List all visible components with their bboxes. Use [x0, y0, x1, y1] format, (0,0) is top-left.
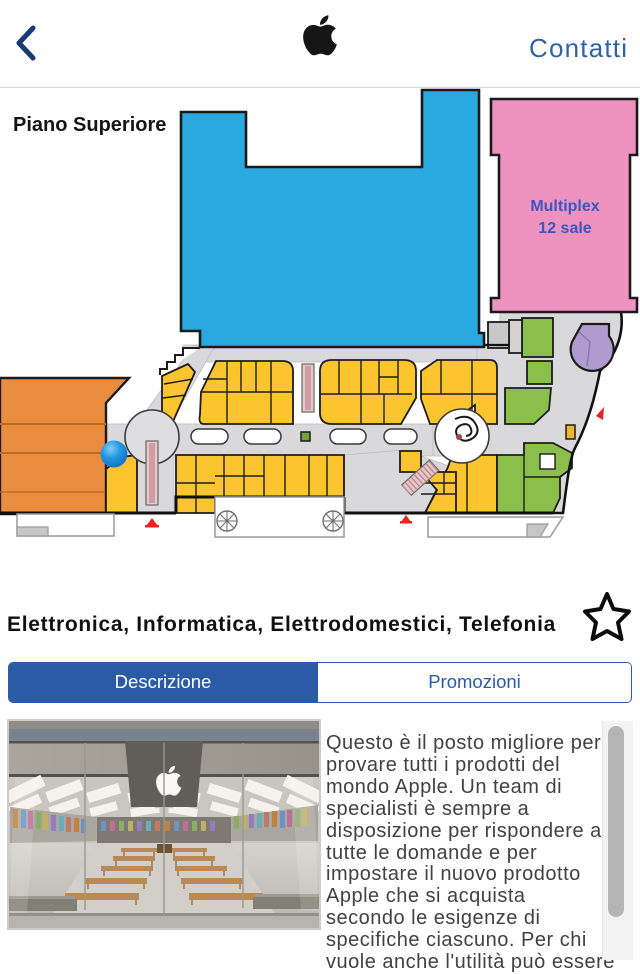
svg-text:Multiplex: Multiplex: [530, 198, 599, 215]
svg-text:Piano Superiore: Piano Superiore: [13, 114, 166, 136]
svg-text:12 sale: 12 sale: [538, 220, 591, 237]
